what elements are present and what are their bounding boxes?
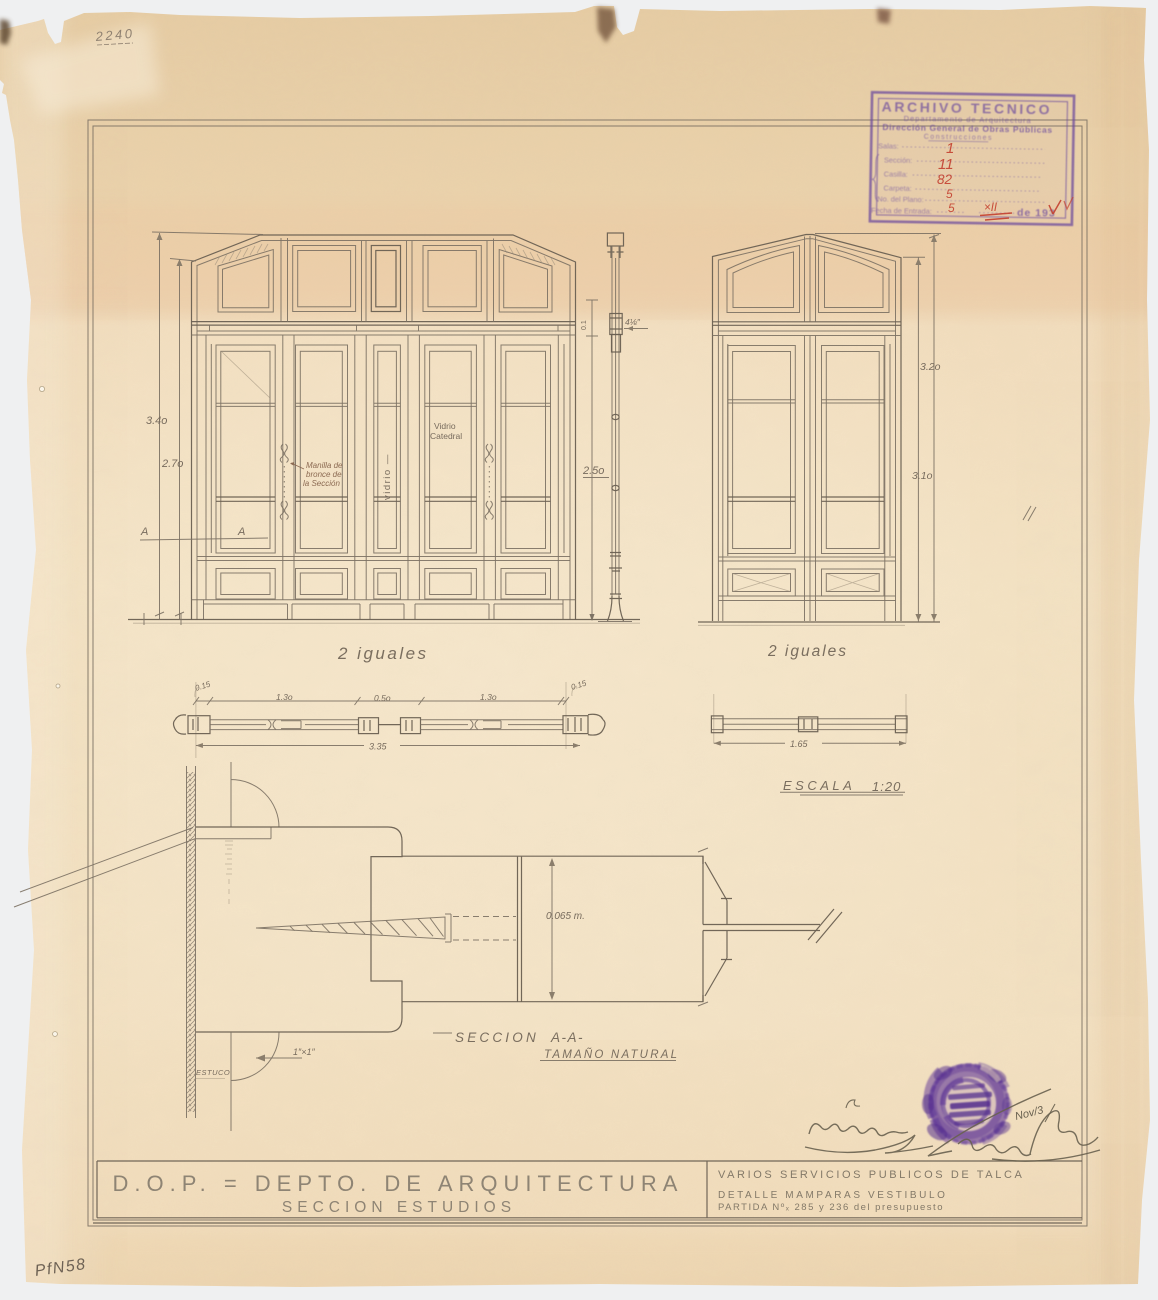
svg-text:2.7o: 2.7o [161,458,183,470]
svg-text:1.3o: 1.3o [276,692,293,702]
svg-text:0.1: 0.1 [581,320,588,330]
svg-text:bronce de: bronce de [306,470,342,479]
svg-text:D.O.P. = DEPTO. DE ARQUITECTUR: D.O.P. = DEPTO. DE ARQUITECTURA [113,1171,684,1196]
svg-text:Manilla de: Manilla de [306,461,343,470]
svg-text:Catedral: Catedral [430,431,462,441]
svg-text:Vidrio: Vidrio [434,421,456,431]
svg-text:3.2o: 3.2o [920,361,941,373]
svg-text:la Sección: la Sección [303,479,340,488]
svg-text:TAMAÑO NATURAL: TAMAÑO NATURAL [544,1048,679,1061]
svg-text:3.4o: 3.4o [146,415,167,427]
svg-text:ESCALA: ESCALA [783,778,855,793]
svg-text:Casilla:: Casilla: [884,169,908,178]
svg-text:3.35: 3.35 [369,742,388,752]
svg-text:5: 5 [948,201,955,215]
svg-text:0.065 m.: 0.065 m. [546,911,585,922]
svg-text:2.5o: 2.5o [582,465,604,477]
svg-text:2 iguales: 2 iguales [767,643,848,660]
svg-text:1.65: 1.65 [790,739,809,749]
svg-text:A-A-: A-A- [550,1030,584,1045]
svg-text:1:20: 1:20 [872,779,901,794]
svg-text:1.3o: 1.3o [480,692,497,702]
svg-text:A: A [237,526,245,538]
svg-text:5: 5 [946,187,953,201]
svg-text:1: 1 [946,140,954,157]
svg-text:2 iguales: 2 iguales [337,644,429,663]
svg-text:Salas:: Salas: [878,141,899,150]
svg-text:VARIOS SERVICIOS PUBLICOS DE T: VARIOS SERVICIOS PUBLICOS DE TALCA [718,1169,1024,1181]
svg-text:Sección:: Sección: [884,155,913,164]
svg-text:SECCION ESTUDIOS: SECCION ESTUDIOS [282,1199,516,1216]
svg-text:4⅛″: 4⅛″ [625,317,641,327]
svg-text:Fecha de Entrada:: Fecha de Entrada: [871,206,932,216]
svg-text:×II: ×II [984,202,998,214]
svg-text:11: 11 [938,156,954,173]
svg-text:82: 82 [937,172,953,187]
svg-text:A: A [140,526,148,538]
svg-text:0.5o: 0.5o [374,693,391,703]
svg-text:1″×1″: 1″×1″ [293,1047,315,1057]
svg-text:PARTIDA Nºₓ 285 y 236 del pres: PARTIDA Nºₓ 285 y 236 del presupuesto [718,1202,944,1213]
svg-text:vidrio —: vidrio — [382,453,393,500]
svg-text:DETALLE MAMPARAS VESTIBULO: DETALLE MAMPARAS VESTIBULO [718,1190,948,1201]
svg-text:SECCION: SECCION [455,1030,539,1045]
svg-text:ESTUCO: ESTUCO [196,1068,230,1077]
svg-text:3.1o: 3.1o [912,470,933,482]
svg-text:No. del Plano:: No. del Plano: [877,194,924,204]
svg-text:Carpeta:: Carpeta: [883,183,912,192]
